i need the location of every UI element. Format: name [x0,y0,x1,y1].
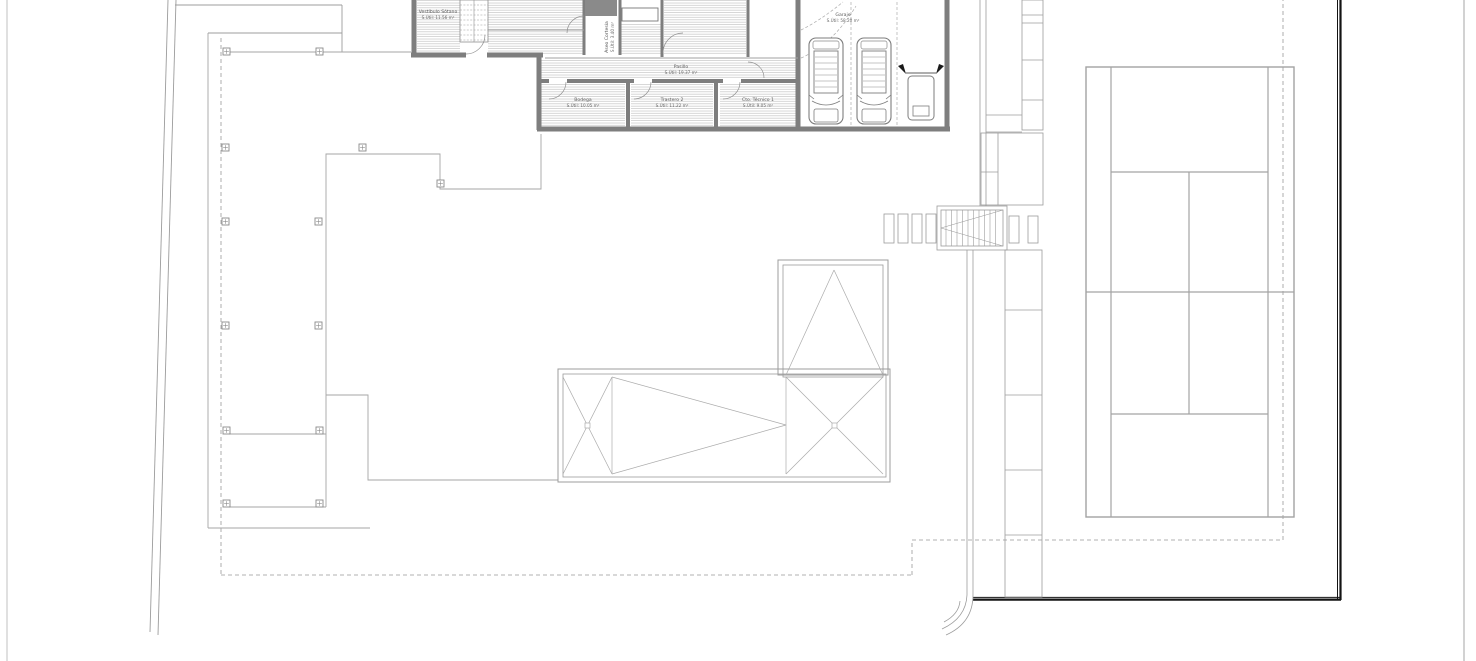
roof-top-wing-inner [783,265,883,377]
stairs-outer [937,206,1007,250]
hip-line [834,270,883,375]
svg-text:S.Útil: 11.22 m²: S.Útil: 11.22 m² [656,103,689,108]
room-label-garaje: Garaje S.Útil: 58.20 m² [827,12,860,23]
stairs-diagonal-1 [941,210,1003,228]
tennis-court [1086,67,1294,517]
svg-text:S.Útil: 11.56 m²: S.Útil: 11.56 m² [422,15,455,20]
driveway-curves [942,595,973,635]
landing-box [981,133,1043,205]
exterior-stairs [937,206,1007,250]
boundary-line-inner [158,0,176,635]
svg-text:Cto. Técnico 1: Cto. Técnico 1 [742,96,774,103]
plot-boundary-black [973,0,1341,600]
post-marker [222,218,229,225]
post-marker [315,218,322,225]
stepping-stone [898,214,908,243]
site-boundary-west [150,0,176,635]
hatch-hall [488,0,583,55]
post-marker [222,322,229,329]
motorcycle-body [908,76,934,120]
svg-text:S.Útil: 10.05 m²: S.Útil: 10.05 m² [567,103,600,108]
handlebar-arrow-left [898,64,906,74]
svg-text:Aseo Cortesía: Aseo Cortesía [603,21,610,53]
room-label-aseo: Aseo Cortesía S.Útil: 3.40 m² [603,21,615,53]
entry-path [175,5,342,52]
roof-peak-right [832,423,837,428]
garage [801,2,944,125]
svg-text:S.Útil: 19.37 m²: S.Útil: 19.37 m² [665,70,698,75]
exterior-stairs-area [884,206,1038,250]
roof-peak-left [585,423,590,428]
post-marker [316,427,323,434]
car-2 [857,38,891,124]
stepping-stone [1009,216,1019,243]
svg-text:S.Útil: 3.40 m²: S.Útil: 3.40 m² [610,22,615,52]
roof-terrace [558,260,890,482]
pergola-posts [222,48,444,507]
post-marker [223,500,230,507]
stepping-stones-left [884,214,936,243]
counter-island [622,8,658,21]
hatch-mid-room [620,24,662,55]
wall-column-top [1022,0,1043,130]
handlebar-arrow-right [936,64,944,74]
post-marker [437,180,444,187]
hip-line [612,425,786,474]
site-plan-canvas: Vestíbulo Sótano S.Útil: 11.56 m² Aseo C… [0,0,1476,661]
hip-line [612,377,786,425]
stepping-stones-right [1009,216,1038,243]
stairs-inner [941,210,1003,246]
stepping-stone [912,214,922,243]
stepping-stone [1028,216,1038,243]
driveway-curve-3 [944,601,960,622]
roof-top-wing-outer [778,260,888,375]
post-marker [316,500,323,507]
post-marker [222,144,229,151]
wall-column-bottom [1005,250,1042,597]
svg-text:S.Útil: 58.20 m²: S.Útil: 58.20 m² [827,18,860,23]
svg-text:Vestíbulo Sótano: Vestíbulo Sótano [419,8,458,15]
hatch-vestibulo [417,0,460,52]
room-label-vestibulo: Vestíbulo Sótano S.Útil: 11.56 m² [419,8,458,20]
terrace-connection-edge [326,395,558,480]
post-marker [359,144,366,151]
pergola-inner-outline [326,134,541,507]
post-marker [315,322,322,329]
post-marker [316,48,323,55]
stairs-treads [946,210,996,246]
svg-text:S.Útil: 9.05 m²: S.Útil: 9.05 m² [743,103,773,108]
driveway-curve-1 [942,595,967,629]
roof-left-wing-inner [563,374,886,477]
motorcycle [898,64,944,120]
car-1 [809,38,843,124]
room-label-cto-tecnico: Cto. Técnico 1 S.Útil: 9.05 m² [742,96,774,108]
hatch-east-room [664,0,746,55]
closet-block [585,0,617,16]
driveway-curve-2 [946,595,973,635]
interior-stairs [460,0,488,42]
boundary-line-outer [150,0,168,632]
site-plan-drawing: Vestíbulo Sótano S.Útil: 11.56 m² Aseo C… [0,0,1476,661]
stepping-stone [926,214,936,243]
post-marker [223,427,230,434]
stairs-diagonal-2 [941,228,1003,246]
post-marker [223,48,230,55]
hatch-pasillo [540,59,798,79]
stepping-stone [884,214,894,243]
hip-line [786,270,834,375]
deck-outline [208,33,558,528]
roof-hips [563,270,883,474]
